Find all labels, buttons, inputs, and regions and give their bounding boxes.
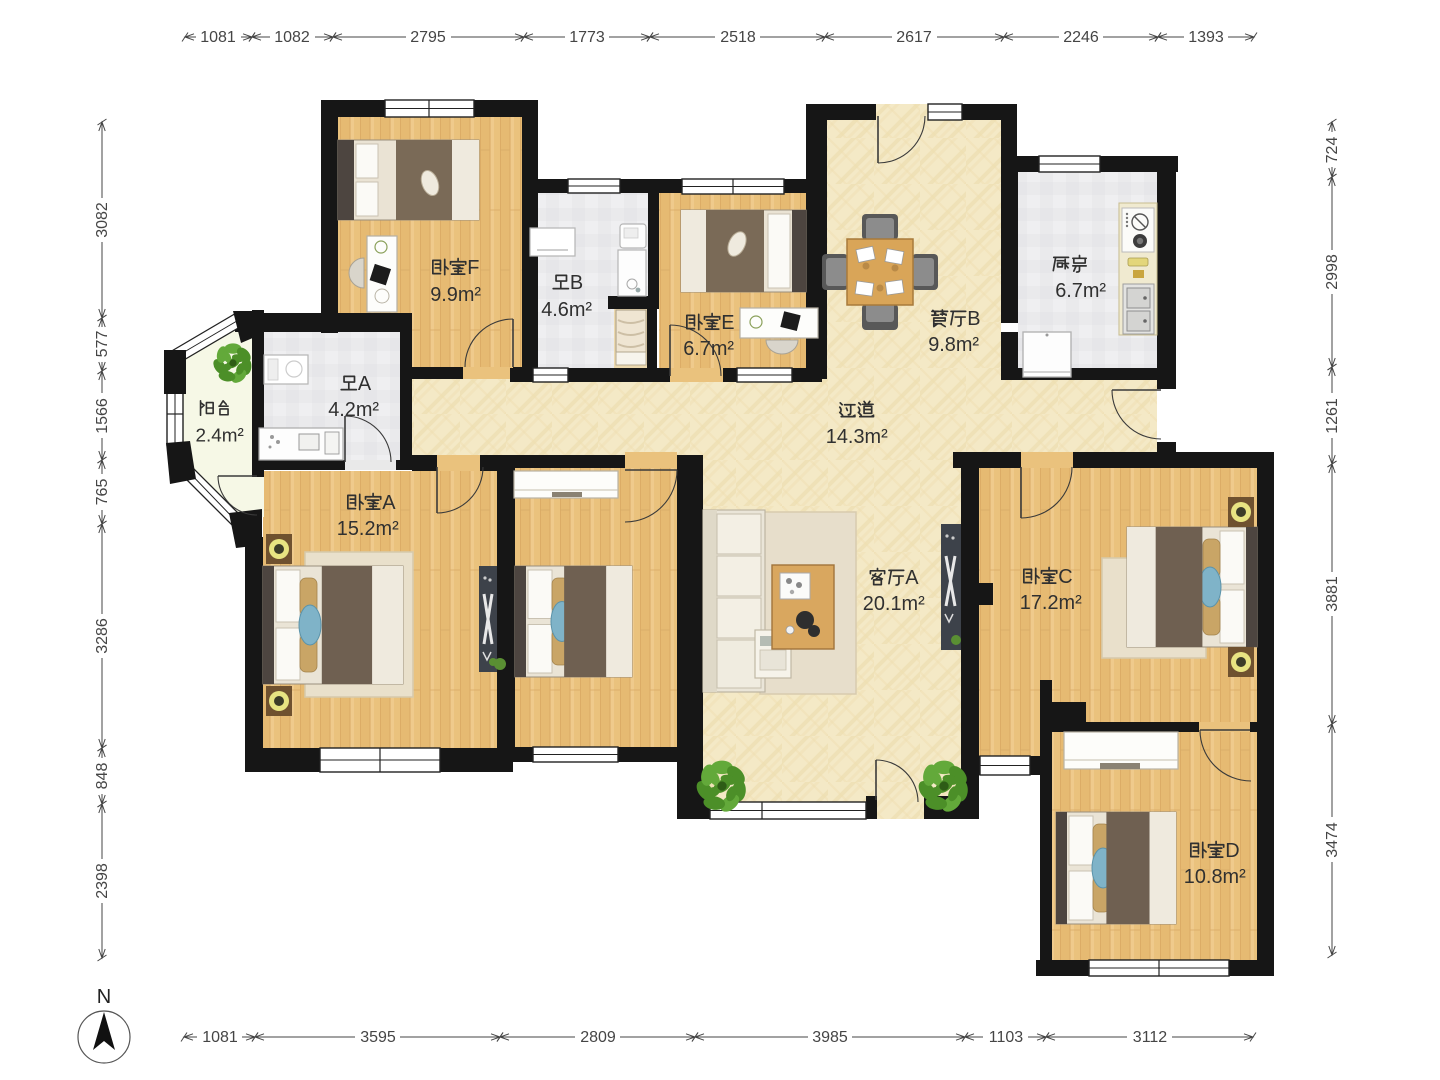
svg-text:1566: 1566: [94, 398, 111, 434]
svg-text:2398: 2398: [94, 863, 111, 899]
svg-text:3286: 3286: [94, 618, 111, 654]
svg-text:20.1m²: 20.1m²: [863, 593, 925, 615]
svg-text:2809: 2809: [580, 1029, 616, 1046]
svg-text:2795: 2795: [410, 29, 446, 46]
svg-text:D: D: [1225, 840, 1239, 862]
svg-text:4.2m²: 4.2m²: [328, 399, 379, 421]
svg-text:724: 724: [1324, 137, 1341, 164]
svg-text:A: A: [905, 567, 919, 589]
svg-text:9.9m²: 9.9m²: [430, 284, 481, 306]
svg-text:2998: 2998: [1324, 254, 1341, 290]
svg-text:1261: 1261: [1324, 398, 1341, 434]
svg-text:1393: 1393: [1188, 29, 1224, 46]
svg-text:6.7m²: 6.7m²: [683, 338, 734, 360]
svg-text:6.7m²: 6.7m²: [1055, 280, 1106, 302]
svg-text:3112: 3112: [1133, 1029, 1168, 1046]
svg-text:A: A: [358, 373, 372, 395]
svg-text:2617: 2617: [896, 29, 932, 46]
svg-text:3474: 3474: [1324, 822, 1341, 858]
svg-text:3082: 3082: [94, 202, 111, 238]
svg-text:1081: 1081: [200, 29, 236, 46]
svg-text:4.6m²: 4.6m²: [541, 299, 592, 321]
svg-text:3881: 3881: [1324, 576, 1341, 612]
svg-text:B: B: [967, 308, 980, 330]
svg-text:E: E: [721, 312, 734, 334]
svg-text:C: C: [1058, 566, 1072, 588]
svg-text:1082: 1082: [274, 29, 310, 46]
svg-text:1773: 1773: [569, 29, 605, 46]
svg-text:2518: 2518: [720, 29, 756, 46]
svg-text:9.8m²: 9.8m²: [928, 334, 979, 356]
svg-text:15.2m²: 15.2m²: [337, 518, 399, 540]
svg-text:2246: 2246: [1063, 29, 1099, 46]
svg-text:577: 577: [94, 331, 111, 358]
svg-text:F: F: [467, 257, 479, 279]
svg-text:14.3m²: 14.3m²: [826, 426, 888, 448]
svg-text:2.4m²: 2.4m²: [196, 426, 244, 447]
svg-text:1081: 1081: [202, 1029, 238, 1046]
svg-text:3985: 3985: [812, 1029, 848, 1046]
svg-text:765: 765: [94, 479, 111, 506]
svg-text:848: 848: [94, 763, 111, 790]
svg-text:3595: 3595: [360, 1029, 396, 1046]
svg-text:1103: 1103: [989, 1029, 1024, 1046]
svg-text:A: A: [382, 492, 396, 514]
svg-text:10.8m²: 10.8m²: [1184, 866, 1246, 888]
svg-text:17.2m²: 17.2m²: [1020, 592, 1082, 614]
svg-text:N: N: [97, 986, 111, 1008]
svg-text:B: B: [570, 272, 583, 294]
